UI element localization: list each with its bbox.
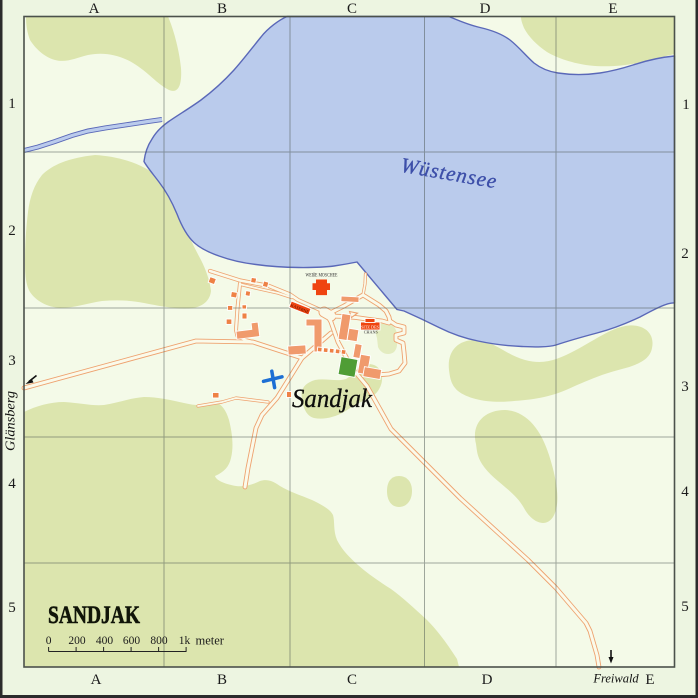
svg-text:0: 0 — [46, 635, 52, 647]
svg-text:5: 5 — [681, 599, 689, 615]
svg-text:D: D — [480, 1, 491, 17]
svg-text:1: 1 — [8, 96, 16, 112]
svg-text:Glänsberg: Glänsberg — [4, 391, 19, 451]
svg-text:A: A — [91, 672, 102, 688]
svg-text:WEIßE MOSCHEE: WEIßE MOSCHEE — [306, 274, 338, 279]
svg-text:B: B — [217, 672, 227, 688]
svg-text:4: 4 — [681, 484, 689, 500]
svg-text:B: B — [217, 1, 227, 17]
svg-text:400: 400 — [96, 635, 114, 647]
svg-text:A: A — [89, 1, 100, 17]
svg-text:Freiwald: Freiwald — [592, 672, 639, 686]
svg-text:meter: meter — [196, 634, 225, 648]
svg-text:Sandjak: Sandjak — [292, 384, 372, 413]
svg-text:3: 3 — [8, 353, 16, 369]
svg-text:800: 800 — [150, 635, 168, 647]
svg-text:2: 2 — [8, 223, 16, 239]
svg-text:4: 4 — [8, 476, 16, 492]
svg-text:200: 200 — [68, 635, 86, 647]
svg-text:D: D — [482, 672, 493, 688]
svg-text:3: 3 — [681, 379, 689, 395]
svg-text:1k: 1k — [179, 635, 191, 647]
svg-text:2: 2 — [681, 246, 689, 262]
svg-text:1: 1 — [682, 97, 690, 113]
svg-text:C: C — [347, 672, 357, 688]
svg-text:C: C — [347, 1, 357, 17]
svg-text:5: 5 — [8, 600, 16, 616]
svg-text:SITZ DES: SITZ DES — [361, 324, 379, 329]
svg-text:E: E — [645, 672, 654, 688]
svg-text:CHANS: CHANS — [364, 330, 379, 335]
svg-text:E: E — [608, 1, 617, 17]
svg-text:600: 600 — [123, 635, 141, 647]
svg-text:SANDJAK: SANDJAK — [48, 602, 140, 629]
